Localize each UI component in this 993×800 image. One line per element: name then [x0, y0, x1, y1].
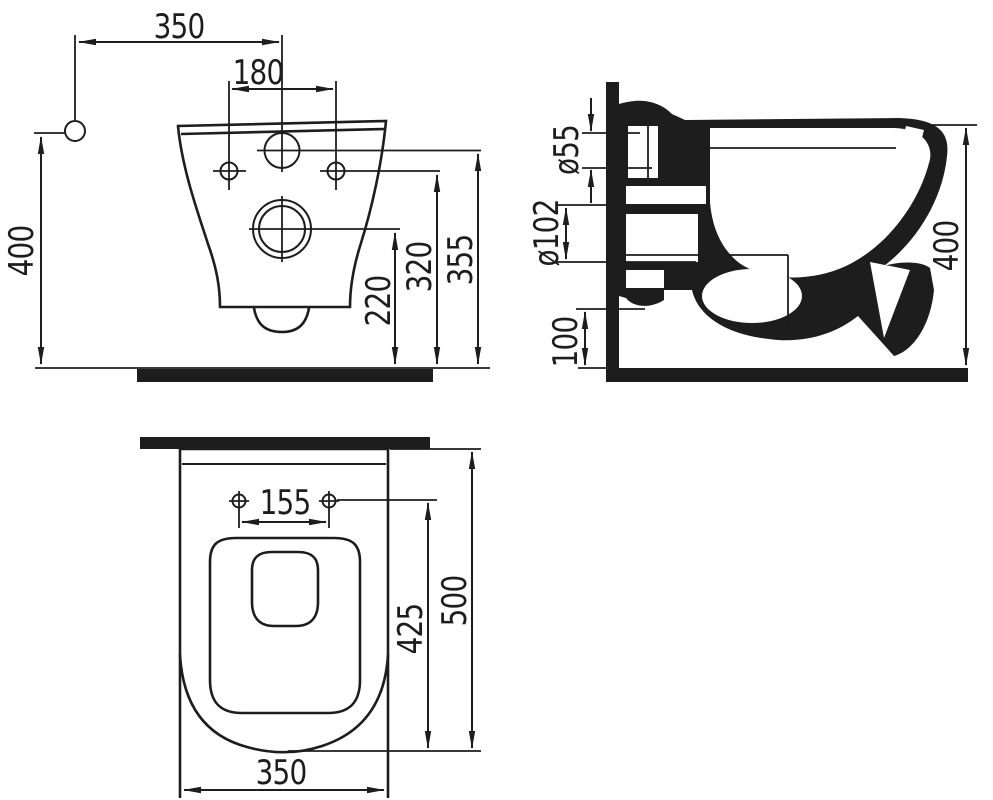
dim-label-400-side: 400: [927, 221, 966, 272]
front-floor-bar: [137, 369, 433, 382]
dim-label-355: 355: [441, 235, 480, 286]
dim-label-100: 100: [546, 317, 585, 368]
dim-label-350-front: 350: [154, 7, 205, 46]
dim-label-220: 220: [359, 276, 398, 327]
plan-wall-bar: [140, 437, 430, 449]
side-trap-channel: [702, 269, 802, 323]
dim-label-155: 155: [260, 483, 311, 522]
plan-bowl-opening: [252, 552, 318, 626]
side-floor-bar: [606, 368, 968, 382]
dim-label-320: 320: [400, 242, 439, 293]
front-trap-arc: [254, 308, 309, 332]
dim-label-500: 500: [435, 576, 474, 627]
technical-drawing-page: 350 180 400 220 320 355: [0, 0, 993, 800]
dim-label-180: 180: [233, 53, 284, 92]
front-view: 350 180 400 220 320 355: [2, 7, 490, 382]
dim-label-d55: ø55: [547, 125, 586, 175]
dim-label-400-front: 400: [2, 226, 41, 277]
toilet-dimension-drawing: 350 180 400 220 320 355: [0, 0, 993, 800]
plan-view: 155 425 500 350: [140, 437, 481, 798]
side-wall-bar: [606, 82, 619, 376]
dim-label-425: 425: [391, 604, 430, 655]
dim-label-d102: ø102: [527, 200, 566, 267]
side-toilet-section: [619, 101, 947, 356]
reference-point-circle: [65, 121, 85, 141]
dim-label-350-plan: 350: [256, 753, 307, 792]
side-view: ø55 ø102 100 400: [527, 82, 977, 382]
